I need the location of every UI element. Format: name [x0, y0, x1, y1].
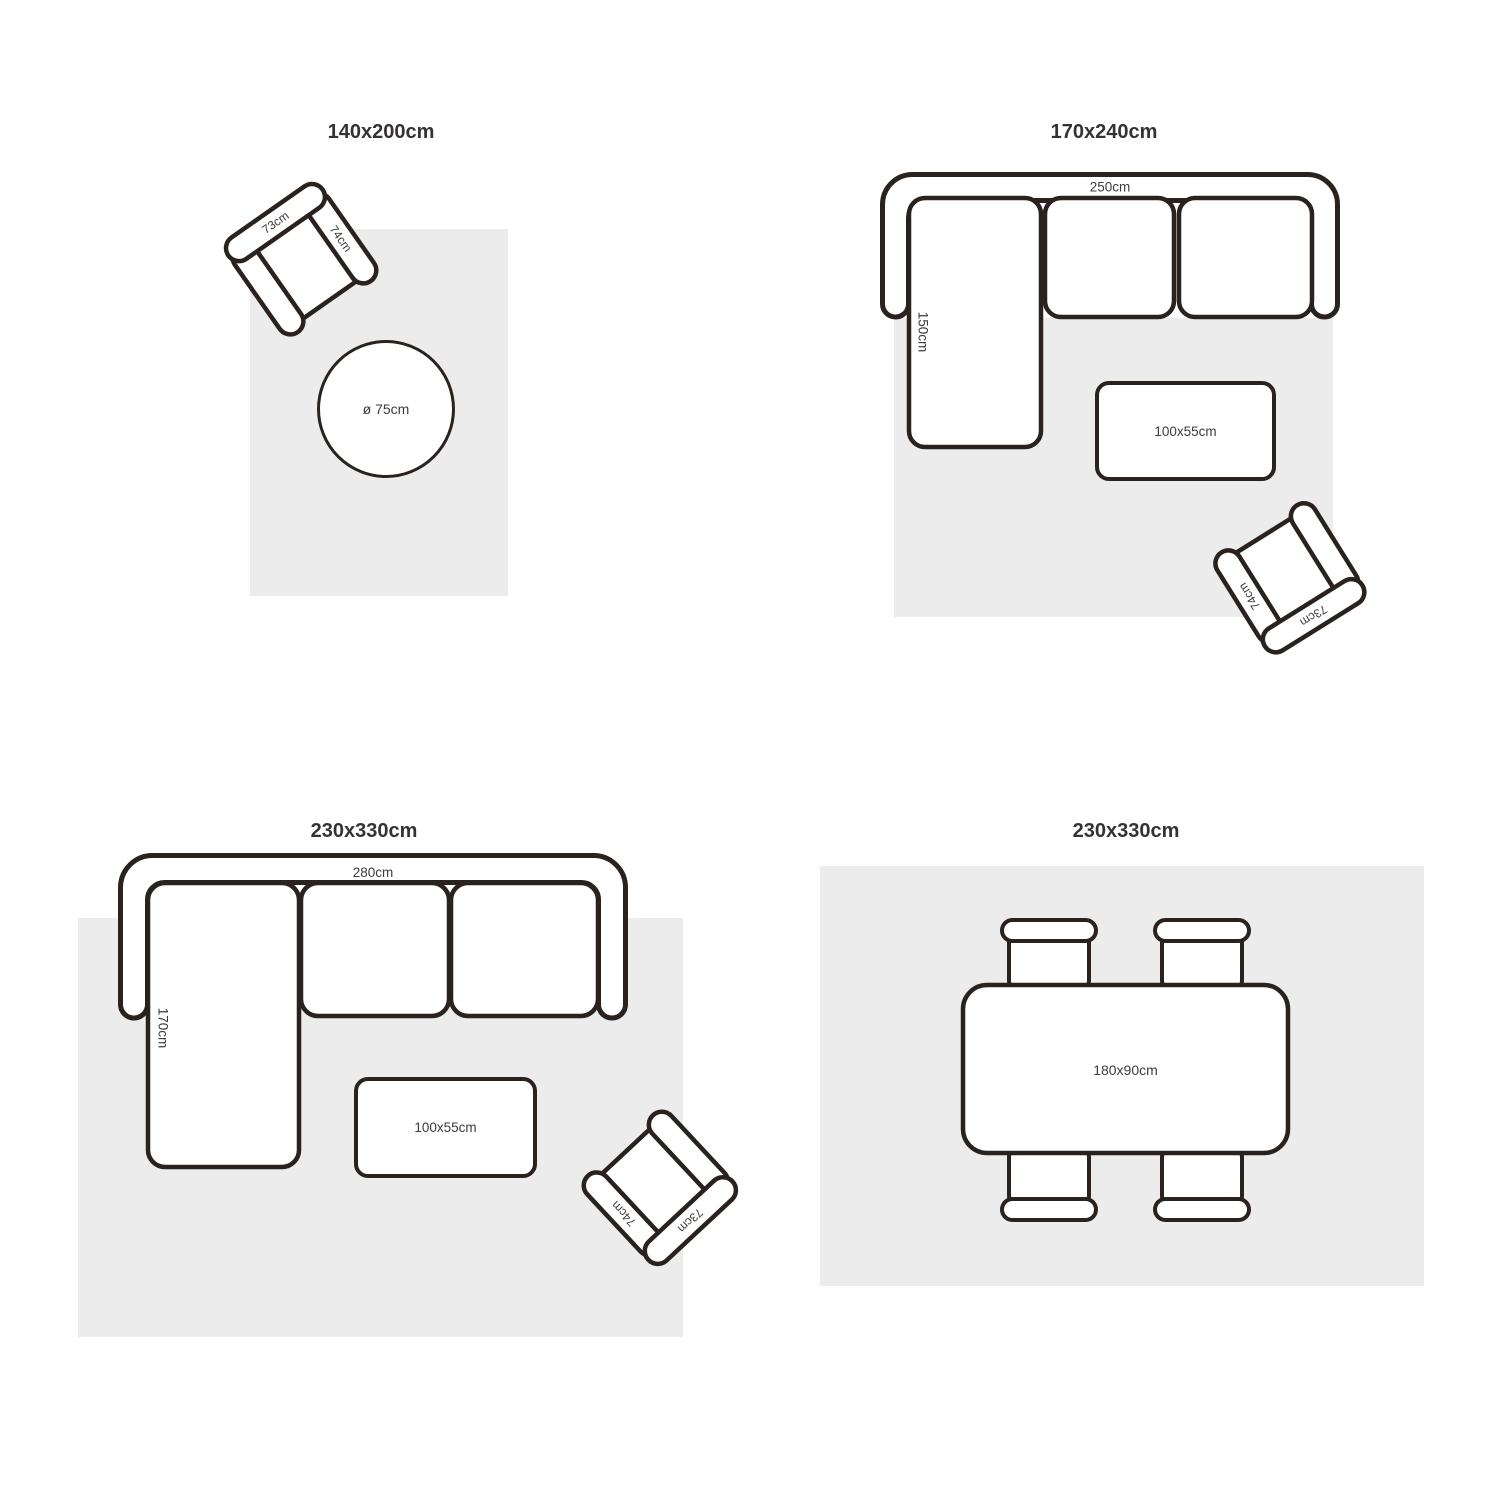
rug-size-guide: 140x200cm ø 75cm 73cm 74cm 170x240cm 250…	[0, 0, 1500, 1500]
sofa-seat-cushion	[451, 883, 598, 1016]
sofa-seat-cushion	[301, 883, 449, 1016]
dining-table-size-label: 180x90cm	[1093, 1062, 1158, 1078]
sofa-chaise-label: 150cm	[916, 312, 931, 353]
rug-size-title-140x200: 140x200cm	[271, 119, 491, 145]
dining-chair-backrest	[1155, 920, 1249, 941]
dining-chair-seat	[1009, 936, 1089, 987]
sofa-width-label: 280cm	[353, 865, 394, 880]
dining-chair-seat	[1009, 1151, 1089, 1202]
rug-size-title-230x330-dining: 230x330cm	[1016, 818, 1236, 844]
dining-chair-backrest	[1155, 1199, 1249, 1220]
dining-chair-seat	[1162, 936, 1242, 987]
sofa-seat-cushion	[1179, 198, 1312, 317]
sofa-chaise-label: 170cm	[156, 1008, 171, 1049]
dining-chair-seat	[1162, 1151, 1242, 1202]
coffee-table-size-label: 100x55cm	[1154, 424, 1216, 439]
round-table-size-label: ø 75cm	[363, 401, 410, 417]
dining-chair-backrest	[1002, 920, 1096, 941]
coffee-table: 100x55cm	[1095, 381, 1276, 481]
rug-size-title-170x240: 170x240cm	[994, 119, 1214, 145]
sofa-width-label: 250cm	[1090, 180, 1131, 195]
coffee-table: 100x55cm	[354, 1077, 537, 1178]
rug-size-title-230x330-sofa: 230x330cm	[254, 818, 474, 844]
dining-chair-backrest	[1002, 1199, 1096, 1220]
coffee-table-size-label: 100x55cm	[414, 1120, 476, 1135]
sofa-seat-cushion	[1045, 198, 1174, 317]
dining-set: 180x90cm	[960, 917, 1290, 1223]
round-table: ø 75cm	[317, 340, 455, 478]
